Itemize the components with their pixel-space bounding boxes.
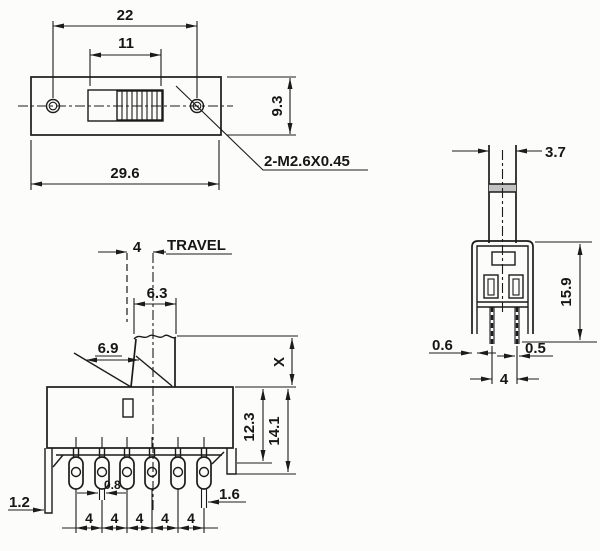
dim-knob-width-label: 3.7	[545, 144, 566, 161]
dim-terminal-pitch: 4 4 4 4 4	[62, 510, 218, 528]
dim-hole-span: 22	[53, 7, 197, 98]
pitch-label-2: 4	[111, 510, 119, 526]
front-view-body	[47, 387, 233, 448]
dim-travel-label: 4	[133, 239, 142, 256]
dim-hole-span-label: 22	[117, 7, 134, 24]
dim-foot-right: 1.6	[208, 486, 246, 503]
dim-knob-width: 3.7	[452, 144, 566, 161]
dim-body-length-label: 29.6	[110, 165, 139, 182]
dim-bracket-thickness-label: 0.6	[432, 337, 453, 354]
left-foot	[45, 448, 52, 513]
dim-foot-right-label: 1.6	[219, 486, 240, 503]
terminal-5	[171, 437, 185, 533]
dim-knob-height: X	[177, 336, 298, 385]
body-hole	[123, 399, 133, 417]
pitch-label-3: 4	[136, 510, 144, 526]
dim-body-depth-label: 12.3	[241, 412, 258, 441]
front-view: 4 TRAVEL 6.3 6.9	[8, 237, 298, 533]
dim-body-height-label: 15.9	[558, 277, 575, 306]
terminal-3	[120, 437, 134, 533]
dim-knob-top-label: 6.3	[147, 285, 168, 302]
travel-text: TRAVEL	[167, 237, 226, 254]
terminal-1	[69, 437, 83, 533]
terminal-6	[197, 437, 211, 533]
dim-slot-width-label: 11	[118, 35, 134, 52]
slide-switch-drawing: 22 11 29.6 9.3 2-M2.6X0.45	[0, 0, 600, 551]
dim-knob-top: 6.3	[134, 285, 176, 334]
dim-overall-depth-label: 14.1	[266, 416, 283, 445]
dim-slot-width: 11	[90, 35, 161, 86]
pitch-label-5: 4	[187, 510, 195, 526]
technical-drawing-page: 22 11 29.6 9.3 2-M2.6X0.45	[0, 0, 600, 551]
dim-body-depth: 12.3	[241, 389, 263, 461]
body-window	[492, 252, 515, 265]
side-pins	[490, 307, 519, 344]
dim-foot-left-label: 1.2	[9, 494, 30, 511]
dim-knob-height-label: X	[271, 357, 288, 367]
dim-overall-depth: 14.1	[266, 389, 288, 472]
dim-body-width-label: 9.3	[269, 96, 286, 117]
thread-note-label: 2-M2.6X0.45	[264, 153, 350, 170]
dim-pin-thickness: 0.5	[497, 340, 553, 357]
dim-terminal-thickness: 0.8	[77, 478, 126, 493]
dim-foot-left: 1.2	[8, 494, 44, 511]
terminal-4	[145, 437, 159, 533]
dim-knob-slant-label: 6.9	[98, 340, 119, 357]
dim-body-width: 9.3	[227, 77, 296, 135]
dim-terminal-thickness-label: 0.8	[104, 478, 121, 492]
side-view: 3.7 15.9	[429, 144, 597, 388]
dim-knob-slant: 6.9	[86, 340, 139, 360]
dim-bracket-thickness: 0.6	[429, 337, 496, 354]
front-knob	[74, 335, 176, 387]
top-view: 22 11 29.6 9.3 2-M2.6X0.45	[18, 7, 368, 190]
dim-travel: 4 TRAVEL	[98, 237, 232, 256]
right-foot	[227, 448, 236, 474]
dim-pin-thickness-label: 0.5	[525, 340, 546, 357]
dim-pin-pitch-label: 4	[500, 371, 509, 388]
pitch-label-1: 4	[85, 510, 93, 526]
dim-body-length: 29.6	[31, 140, 219, 190]
pitch-label-4: 4	[161, 510, 169, 526]
